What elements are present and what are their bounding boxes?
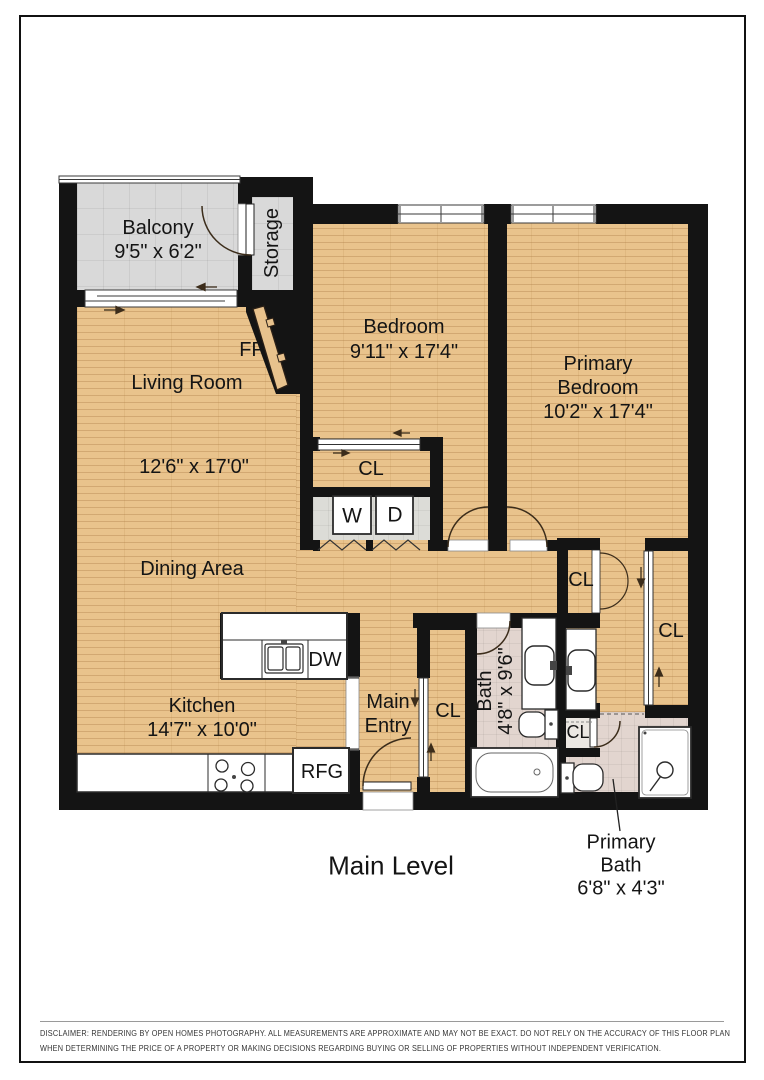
hall-sink-icon xyxy=(568,650,595,691)
main-entry-label-line1: Main xyxy=(365,690,412,714)
primary-bath-label-line2: Bath xyxy=(577,855,664,878)
arrow-left-icon xyxy=(197,284,217,291)
dishwasher-label: DW xyxy=(308,649,341,671)
balcony-dims: 9'5" x 6'2" xyxy=(114,241,201,263)
balcony-railing-window xyxy=(59,176,240,183)
arrow-down-icon xyxy=(412,689,419,706)
bedroom-dims: 9'11" x 17'4" xyxy=(350,341,458,363)
bath-vanity xyxy=(522,618,557,709)
arrow-right-icon xyxy=(333,450,349,456)
bath-door-threshold xyxy=(477,613,510,628)
shower-icon xyxy=(639,727,691,798)
storage-label: Storage xyxy=(261,208,283,278)
primary-bath-label-line1: Primary xyxy=(577,832,664,855)
bathtub-icon xyxy=(471,748,558,797)
hall-closet-label: CL xyxy=(358,458,384,480)
bath-closet-label: CL xyxy=(566,723,589,743)
balcony-label: Balcony xyxy=(122,217,193,239)
kitchen-label: Kitchen xyxy=(169,695,236,717)
disclaimer-line-1: DISCLAIMER: RENDERING BY OPEN HOMES PHOT… xyxy=(40,1028,730,1038)
bedroom-label: Bedroom xyxy=(363,316,444,338)
fireplace-label: FP xyxy=(239,339,265,361)
bath-label: Bath 4'8" x 9'6" xyxy=(475,647,517,734)
refrigerator-label: RFG xyxy=(301,761,343,783)
arrow-down-icon xyxy=(638,567,645,587)
entry-door xyxy=(363,738,411,790)
kitchen-base-counter xyxy=(77,754,294,792)
bath-dims: 4'8" x 9'6" xyxy=(496,647,517,734)
hall-closet-slider xyxy=(318,439,420,450)
primary-toilet-icon xyxy=(561,763,603,793)
floor-plan-page: Balcony 9'5" x 6'2" Storage Bedroom 9'11… xyxy=(0,0,764,1080)
bath-toilet-icon xyxy=(519,710,558,739)
arrow-up-icon xyxy=(656,668,663,687)
primary-bedroom-label-line1: Primary xyxy=(543,352,653,376)
balcony-sliding-door xyxy=(85,290,237,307)
bath-closet-door xyxy=(590,718,620,747)
kitchen-sink-icon xyxy=(265,640,303,673)
plan-drawing xyxy=(0,0,764,1080)
dining-area-label: Dining Area xyxy=(140,558,243,580)
main-entry-label-line2: Entry xyxy=(365,714,412,738)
primary-closet-label: CL xyxy=(568,569,594,591)
arrow-right-icon xyxy=(104,307,124,314)
kitchen-dims: 14'7" x 10'0" xyxy=(147,719,257,741)
arrow-up-icon xyxy=(428,744,435,761)
bedroom-window xyxy=(398,205,484,223)
primary-bath-label: Primary Bath 6'8" x 4'3" xyxy=(577,832,664,901)
storage-door xyxy=(202,204,254,255)
right-closet-slider xyxy=(644,551,653,705)
disclaimer-divider xyxy=(40,1021,724,1022)
living-room-dims: 12'6" x 17'0" xyxy=(139,456,249,478)
primary-bedroom-door-threshold xyxy=(510,540,547,551)
living-room-label: Living Room xyxy=(131,372,242,394)
main-entry-label: Main Entry xyxy=(365,690,412,738)
floor-title: Main Level xyxy=(328,852,454,881)
primary-bedroom-window xyxy=(511,205,596,223)
bath-label-name: Bath xyxy=(475,647,496,734)
primary-bedroom-label-line2: Bedroom xyxy=(543,376,653,400)
bedroom-door-threshold xyxy=(448,540,488,551)
primary-closet-bifold-door xyxy=(592,550,628,613)
right-closet-label: CL xyxy=(658,620,684,642)
disclaimer-line-2: WHEN DETERMINING THE PRICE OF A PROPERTY… xyxy=(40,1043,661,1053)
washer-label: W xyxy=(342,504,362,527)
dryer-label: D xyxy=(387,503,402,526)
entry-closet-slider xyxy=(419,678,428,777)
entry-door-threshold xyxy=(363,792,413,810)
kitchen-pass-opening xyxy=(346,677,359,750)
bath-sink-icon xyxy=(525,646,554,685)
hall-vanity xyxy=(566,629,596,710)
primary-bedroom-dims: 10'2" x 17'4" xyxy=(543,400,653,424)
primary-bedroom-label: Primary Bedroom 10'2" x 17'4" xyxy=(543,352,653,424)
arrow-left-icon xyxy=(394,430,410,436)
primary-bath-dims: 6'8" x 4'3" xyxy=(577,878,664,901)
entry-closet-label: CL xyxy=(435,700,461,722)
